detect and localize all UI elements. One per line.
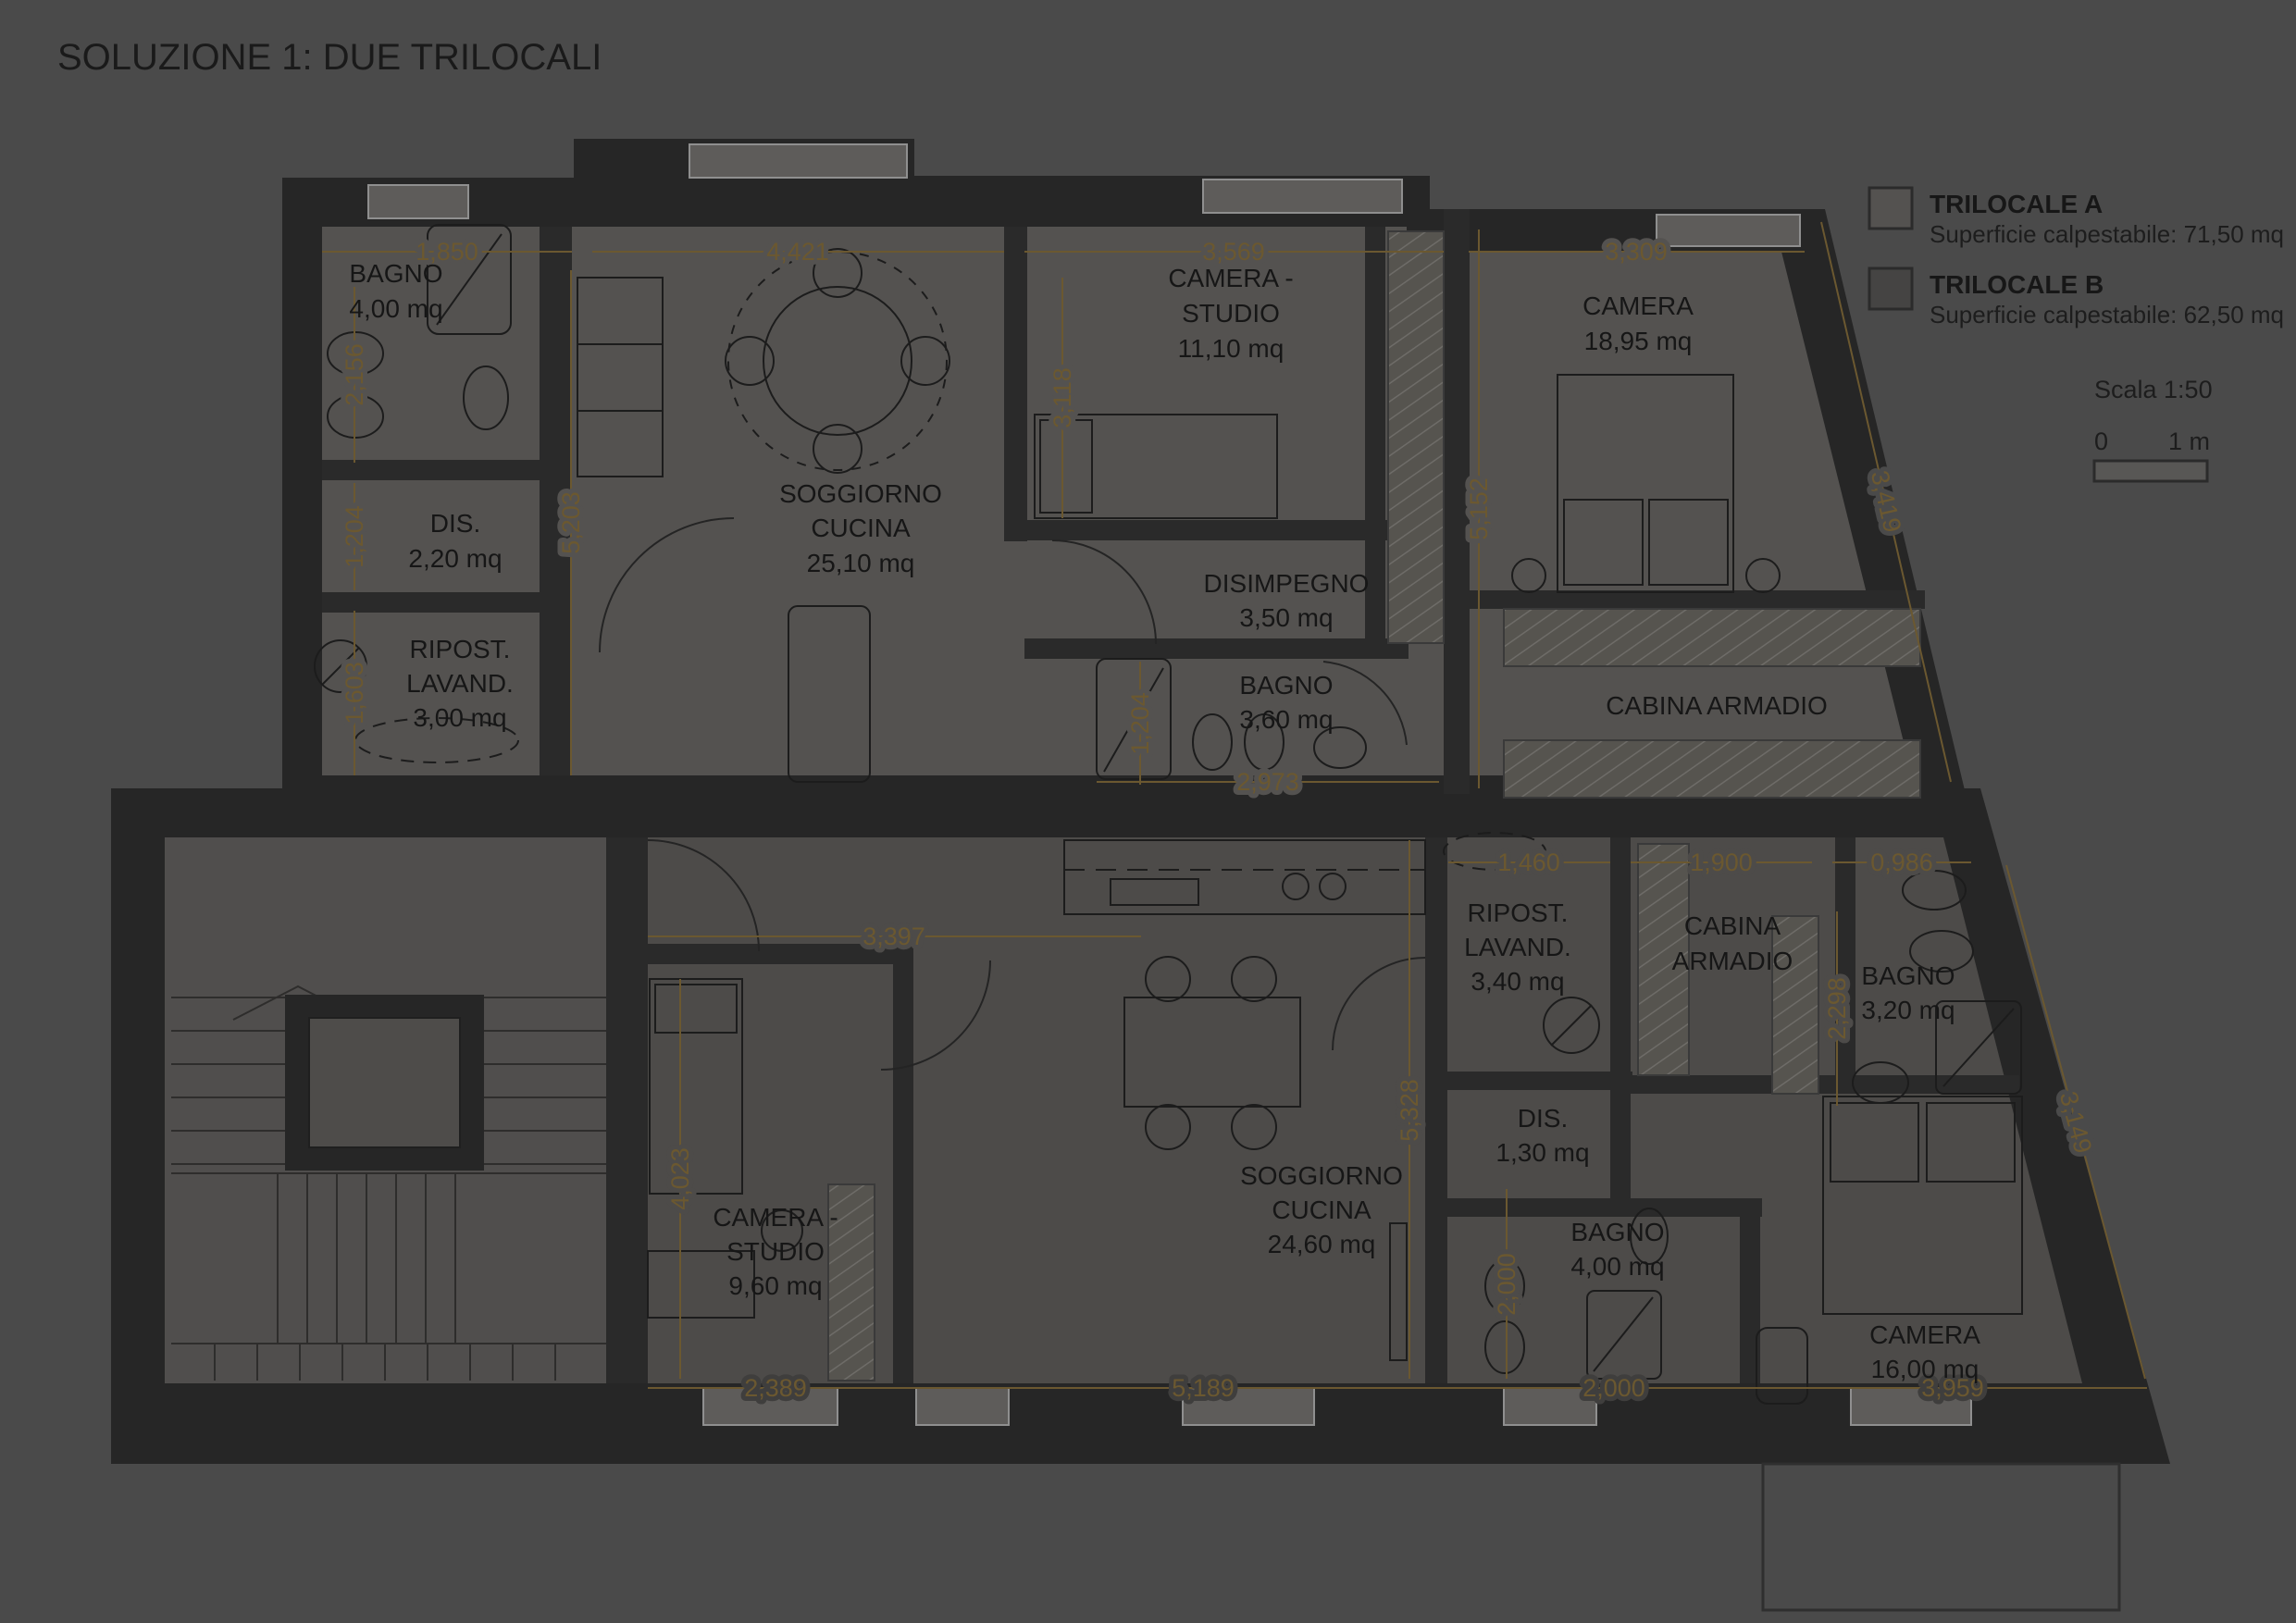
room-label: CUCINA (1272, 1196, 1371, 1224)
room-area: 3,00 mq (413, 703, 506, 732)
room-area: 18,95 mq (1584, 327, 1693, 355)
room-label: BAGNO (1861, 961, 1955, 990)
legend-detail-a: Superficie calpestabile: 71,50 mq (1930, 220, 2284, 248)
legend-swatch-trilocale-a (1869, 188, 1912, 229)
legend-swatch-trilocale-b (1869, 268, 1912, 309)
dim-label: 4,023 (666, 1147, 694, 1210)
dim-label: 0,986 (1870, 849, 1933, 876)
room-label: STUDIO (1182, 299, 1280, 328)
room-area: 16,00 mq (1871, 1355, 1980, 1383)
dim-label: 2,000 (1582, 1374, 1645, 1402)
page-title: SOLUZIONE 1: DUE TRILOCALI (57, 37, 602, 78)
room-area: 3,50 mq (1239, 603, 1333, 632)
room-area: 4,00 mq (1570, 1252, 1664, 1281)
dim-label: 2,389 (744, 1374, 807, 1402)
room-label: CABINA (1684, 911, 1781, 940)
cabina-armadio-b-right (1772, 916, 1818, 1094)
dim-label: 2,973 (1236, 768, 1299, 796)
room-label: RIPOST. (1468, 898, 1569, 927)
room-label: CAMERA - (1168, 264, 1293, 292)
dim-label: 1,603 (341, 662, 368, 725)
room-label: CAMERA (1582, 291, 1694, 320)
room-label: CABINA ARMADIO (1606, 691, 1828, 720)
room-label: ARMADIO (1672, 947, 1793, 975)
room-label: RIPOST. (410, 635, 511, 663)
dim-label: 1,460 (1497, 849, 1560, 876)
scale-label: Scala 1:50 (2094, 376, 2213, 403)
room-area: 2,20 mq (408, 544, 502, 573)
room-label: LAVAND. (1464, 933, 1571, 961)
dim-label: 3,569 (1202, 238, 1265, 266)
dim-label: 5,152 (1465, 477, 1493, 540)
dim-label: 3,309 (1605, 238, 1668, 266)
dim-label: 1,204 (1126, 692, 1154, 755)
legend-title-a: TRILOCALE A (1930, 190, 2103, 218)
room-area: 1,30 mq (1496, 1138, 1589, 1167)
room-label: DIS. (1518, 1104, 1568, 1133)
room-area: 3,40 mq (1471, 967, 1564, 996)
room-label: CUCINA (811, 514, 911, 542)
dim-label: 2,298 (1823, 977, 1851, 1040)
legend-title-b: TRILOCALE B (1930, 270, 2104, 299)
floor-plan-page: SOLUZIONE 1: DUE TRILOCALI (0, 0, 2296, 1623)
room-area: 25,10 mq (807, 549, 915, 577)
room-area: 3,20 mq (1861, 996, 1955, 1024)
scale-bar-rect (2094, 461, 2207, 481)
room-label: SOGGIORNO (1240, 1161, 1403, 1190)
floor-plan-drawing: SOLUZIONE 1: DUE TRILOCALI (0, 0, 2296, 1623)
scale-one-meter: 1 m (2168, 427, 2210, 455)
dim-label: 1,204 (341, 505, 368, 568)
cabina-armadio-a-bottom (1504, 740, 1920, 798)
scale-zero: 0 (2094, 427, 2108, 455)
dim-label: 3,397 (863, 923, 925, 950)
cabina-armadio-a-top (1504, 609, 1920, 666)
room-label: LAVAND. (406, 669, 514, 698)
room-label: BAGNO (349, 259, 442, 288)
room-label: BAGNO (1239, 671, 1333, 700)
balcony (1763, 1464, 2119, 1610)
dim-label: 5,203 (557, 491, 585, 554)
room-label: STUDIO (726, 1237, 825, 1266)
room-area: 24,60 mq (1268, 1230, 1376, 1258)
dim-label: 5,328 (1396, 1079, 1423, 1142)
dim-label: 5,189 (1172, 1374, 1235, 1402)
room-label: CAMERA (1869, 1320, 1980, 1349)
room-label: SOGGIORNO (779, 479, 942, 508)
dim-label: 1,900 (1690, 849, 1753, 876)
room-label: DISIMPEGNO (1204, 569, 1370, 598)
room-area: 3,60 mq (1239, 705, 1333, 734)
elevator (285, 995, 484, 1171)
room-label: BAGNO (1570, 1218, 1664, 1246)
wardrobe-camera-a (1388, 231, 1444, 643)
dim-label: 2,156 (341, 343, 368, 406)
dim-label: 4,421 (766, 238, 829, 266)
room-label: DIS. (430, 509, 480, 538)
room-area: 4,00 mq (349, 294, 442, 323)
dim-label: 2,000 (1493, 1253, 1520, 1316)
room-label: CAMERA - (713, 1203, 838, 1232)
room-area: 9,60 mq (728, 1271, 822, 1300)
dim-label: 3,118 (1049, 367, 1076, 428)
room-area: 11,10 mq (1178, 334, 1285, 363)
legend-detail-b: Superficie calpestabile: 62,50 mq (1930, 301, 2284, 328)
